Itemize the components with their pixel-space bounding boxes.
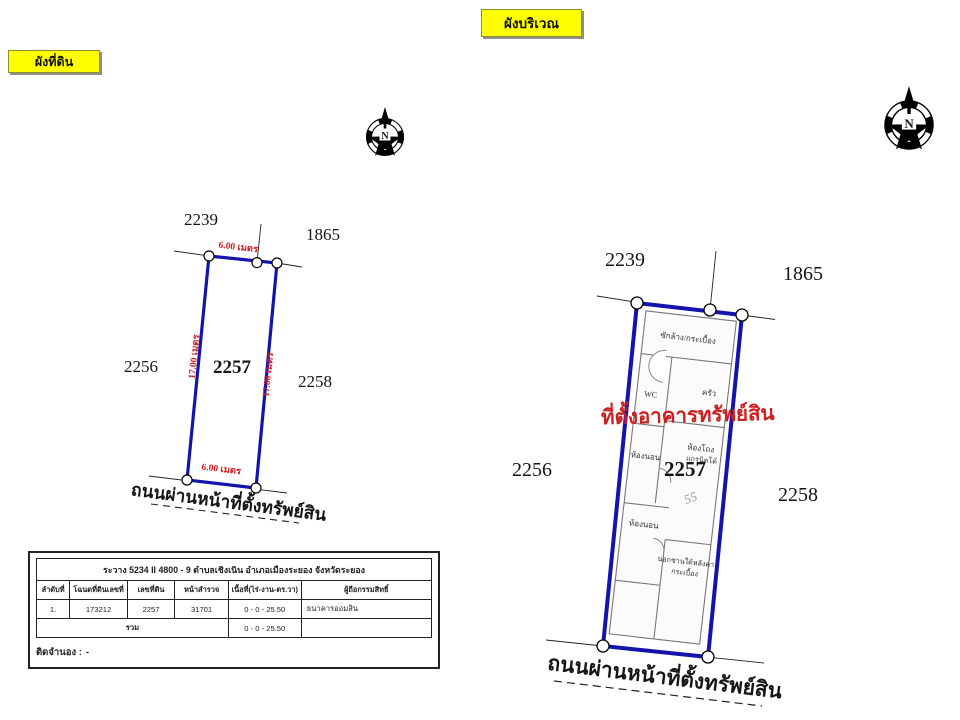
adjacent-parcel-number: 2239	[184, 210, 218, 229]
cell-owner: ธนาคารออมสิน	[301, 600, 431, 619]
survey-document-page: 2239 1865 2256 2258 2257 6.00 เมตร 6.00 …	[0, 0, 960, 720]
adjacent-parcel-number: 2256	[512, 459, 552, 481]
total-label: รวม	[37, 619, 229, 638]
boundary-extension-line	[710, 251, 716, 310]
mortgage-label: ติดจำนอง :	[36, 647, 82, 658]
survey-table: ระวาง 5234 II 4800 - 9 ตำบลเชิงเนิน อำเภ…	[28, 551, 440, 669]
room-label-kitchen: ครัว	[702, 388, 717, 399]
table-total-row: รวม 0 - 0 - 25.50	[37, 619, 432, 638]
compass-north-letter: N	[904, 116, 914, 131]
survey-marker	[631, 297, 643, 309]
adjacent-parcel-number: 2258	[298, 372, 332, 391]
cell-index: 1.	[37, 600, 70, 619]
parcel-number: 2257	[213, 357, 252, 378]
site-plan-diagram: ซักล้าง/กระเบื้อง WC ครัว ห้องนอน ห้องโถ…	[512, 249, 823, 706]
survey-marker	[272, 258, 282, 268]
room-label-wc: WC	[644, 389, 658, 399]
survey-marker	[204, 251, 214, 261]
cell-parcel-no: 2257	[127, 600, 174, 619]
col-header-owner: ผู้ถือกรรมสิทธิ์	[301, 581, 431, 600]
survey-marker	[597, 640, 609, 652]
road-label: ถนนผ่านหน้าที่ตั้งทรัพย์สิน	[546, 647, 784, 704]
col-header-area: เนื้อที่(ไร่-งาน-ตร.วา)	[228, 581, 301, 600]
survey-marker	[702, 651, 714, 663]
adjacent-parcel-number: 1865	[783, 263, 823, 285]
cell-deed-no: 173212	[70, 600, 128, 619]
boundary-extension-line	[257, 224, 261, 262]
table-title: ระวาง 5234 II 4800 - 9 ตำบลเชิงเนิน อำเภ…	[37, 559, 432, 581]
col-header-survey-page: หน้าสำรวจ	[175, 581, 229, 600]
north-compass-icon: N	[885, 86, 933, 149]
table-row: 1. 173212 2257 31701 0 - 0 - 25.50 ธนาคา…	[37, 600, 432, 619]
mortgage-value: -	[86, 647, 89, 658]
col-header-deed-no: โฉนดที่ดินเลขที่	[70, 581, 128, 600]
table-header-row: ลำดับที่ โฉนดที่ดินเลขที่ เลขที่ดิน หน้า…	[37, 581, 432, 600]
cell-survey-page: 31701	[175, 600, 229, 619]
survey-marker	[252, 258, 262, 268]
mortgage-line: ติดจำนอง :-	[36, 645, 432, 660]
survey-marker	[704, 304, 716, 316]
col-header-parcel-no: เลขที่ดิน	[127, 581, 174, 600]
col-header-index: ลำดับที่	[37, 581, 70, 600]
north-compass-icon: N	[366, 107, 403, 156]
site-plan-tag: ผังบริเวณ	[481, 9, 582, 37]
table-title-row: ระวาง 5234 II 4800 - 9 ตำบลเชิงเนิน อำเภ…	[37, 559, 432, 581]
total-owner-empty	[301, 619, 431, 638]
dimension-label-top: 6.00 เมตร	[218, 241, 260, 256]
parcel-number: 2257	[664, 457, 706, 481]
survey-marker	[251, 483, 261, 493]
adjacent-parcel-number: 1865	[306, 225, 340, 244]
adjacent-parcel-number: 2256	[124, 357, 158, 376]
adjacent-parcel-number: 2258	[778, 484, 818, 506]
survey-marker	[182, 475, 192, 485]
compass-north-letter: N	[381, 131, 389, 142]
land-plan-diagram: 2239 1865 2256 2258 2257 6.00 เมตร 6.00 …	[124, 210, 340, 525]
cell-area: 0 - 0 - 25.50	[228, 600, 301, 619]
survey-marker	[736, 309, 748, 321]
total-area: 0 - 0 - 25.50	[228, 619, 301, 638]
adjacent-parcel-number: 2239	[605, 249, 645, 271]
land-plan-tag: ผังที่ดิน	[8, 50, 100, 73]
